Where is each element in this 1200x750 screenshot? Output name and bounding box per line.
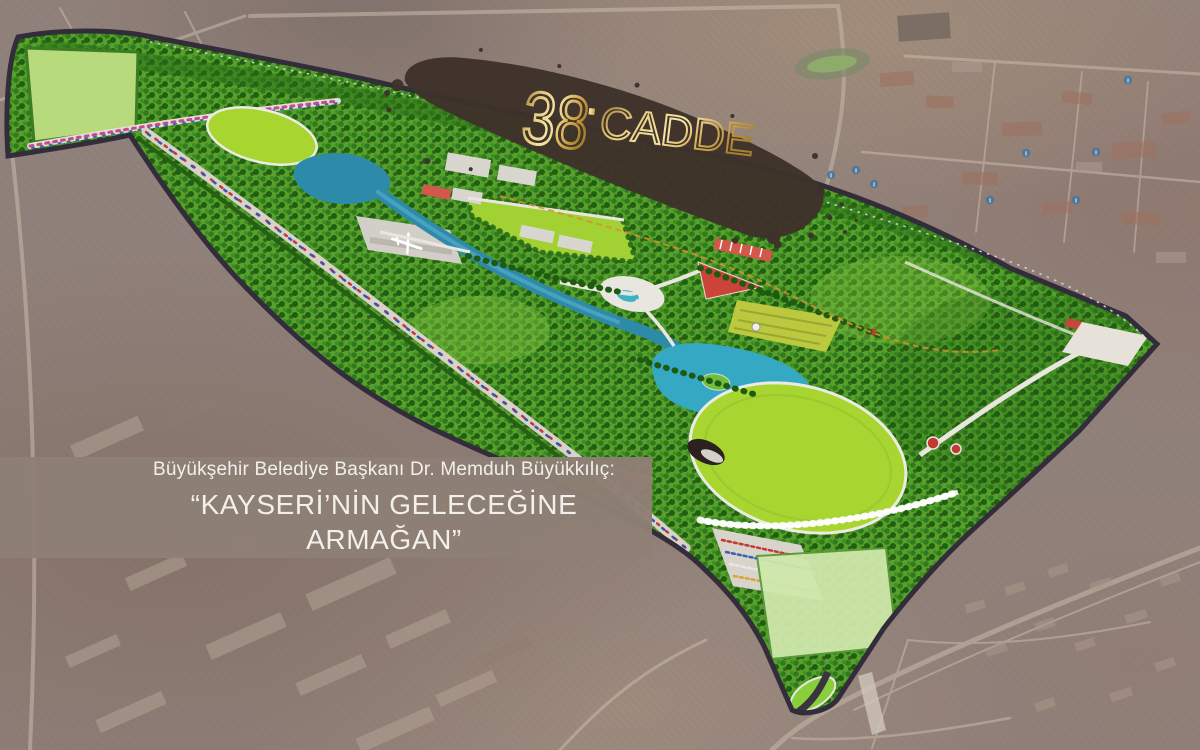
caption-banner: Büyükşehir Belediye Başkanı Dr. Memduh B…	[0, 457, 652, 558]
svg-text:i: i	[1075, 197, 1077, 204]
promo-image: i i i i i i i i	[0, 0, 1200, 750]
caption-title: Büyükşehir Belediye Başkanı Dr. Memduh B…	[116, 458, 652, 483]
svg-text:i: i	[873, 181, 875, 188]
svg-text:i: i	[989, 197, 991, 204]
background-stadium	[792, 44, 871, 84]
scene-artwork: i i i i i i i i	[0, 0, 1200, 750]
svg-text:i: i	[1127, 77, 1129, 84]
park-observation-tower	[752, 323, 760, 331]
svg-text:i: i	[855, 167, 857, 174]
caption-quote: “KAYSERİ’NİN GELECEĞİNE ARMAĞAN”	[116, 487, 652, 557]
svg-text:i: i	[1025, 150, 1027, 157]
svg-text:i: i	[830, 172, 832, 179]
svg-text:i: i	[1095, 149, 1097, 156]
